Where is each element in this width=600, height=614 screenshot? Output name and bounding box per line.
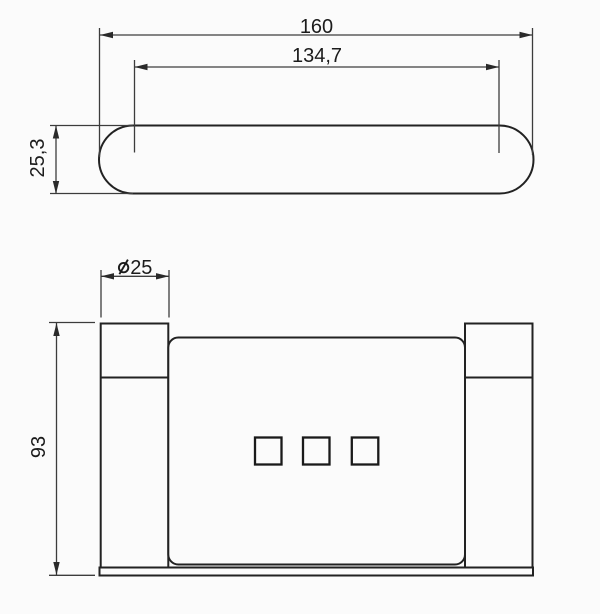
svg-text:134,7: 134,7 bbox=[292, 45, 342, 67]
svg-text:160: 160 bbox=[300, 16, 333, 38]
svg-text:25: 25 bbox=[130, 257, 152, 279]
svg-text:93: 93 bbox=[28, 436, 50, 458]
svg-text:25,3: 25,3 bbox=[27, 139, 49, 178]
